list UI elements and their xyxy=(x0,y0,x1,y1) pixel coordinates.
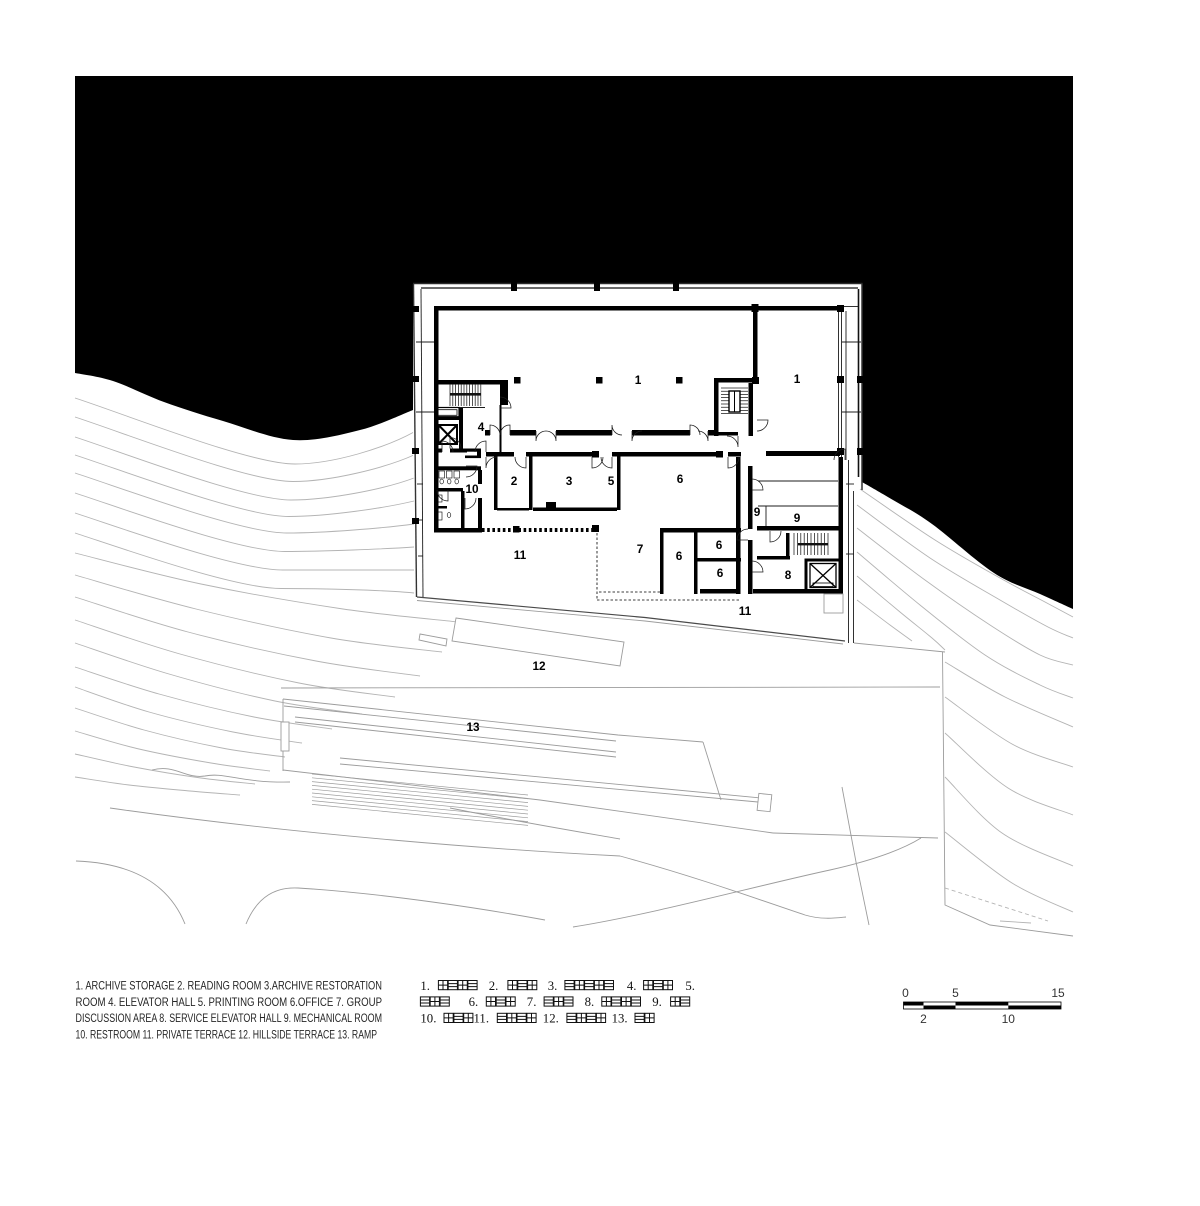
svg-text:3.: 3. xyxy=(548,979,558,993)
svg-text:6: 6 xyxy=(676,549,683,563)
svg-text:DISCUSSION AREA 8. SERVICE EL: DISCUSSION AREA 8. SERVICE ELEVATOR HALL… xyxy=(76,1011,383,1025)
svg-text:10: 10 xyxy=(1002,1012,1016,1026)
svg-text:11: 11 xyxy=(739,604,752,618)
svg-text:1. ARCHIVE STORAGE 2. READ: 1. ARCHIVE STORAGE 2. READING ROOM 3.ARC… xyxy=(76,978,383,992)
svg-text:13.: 13. xyxy=(612,1012,628,1026)
svg-text:7: 7 xyxy=(637,542,644,556)
svg-text:6.: 6. xyxy=(469,995,479,1009)
svg-text:15: 15 xyxy=(1051,986,1065,1000)
svg-text:5: 5 xyxy=(608,474,615,488)
svg-text:1: 1 xyxy=(635,373,642,387)
svg-text:9.: 9. xyxy=(652,995,662,1009)
svg-text:10. RESTROOM 11. PRIVATE TERRA: 10. RESTROOM 11. PRIVATE TERRACE 12. HIL… xyxy=(76,1028,378,1042)
svg-text:9: 9 xyxy=(794,511,801,525)
svg-text:6: 6 xyxy=(716,538,723,552)
svg-text:11.: 11. xyxy=(474,1012,490,1026)
svg-text:2.: 2. xyxy=(489,979,499,993)
svg-text:12: 12 xyxy=(532,659,546,673)
svg-text:2: 2 xyxy=(511,474,518,488)
svg-text:13: 13 xyxy=(466,720,480,734)
svg-text:9: 9 xyxy=(754,505,761,519)
svg-text:5: 5 xyxy=(952,986,959,1000)
svg-text:4.: 4. xyxy=(627,979,637,993)
svg-text:5.: 5. xyxy=(685,979,695,993)
svg-text:12.: 12. xyxy=(543,1012,559,1026)
svg-text:4: 4 xyxy=(478,420,485,434)
svg-text:10: 10 xyxy=(465,482,479,496)
svg-text:0: 0 xyxy=(902,986,909,1000)
svg-text:8: 8 xyxy=(785,568,792,582)
svg-text:ROOM 4. ELEVATOR HALL 5. PR: ROOM 4. ELEVATOR HALL 5. PRINTING ROOM 6… xyxy=(76,995,383,1009)
svg-text:10.: 10. xyxy=(420,1012,436,1026)
svg-text:1.: 1. xyxy=(420,979,430,993)
svg-text:7.: 7. xyxy=(527,995,537,1009)
svg-text:8.: 8. xyxy=(585,995,595,1009)
svg-text:3: 3 xyxy=(566,474,573,488)
svg-text:2: 2 xyxy=(920,1012,927,1026)
svg-text:6: 6 xyxy=(677,472,684,486)
svg-text:1: 1 xyxy=(794,372,801,386)
svg-text:6: 6 xyxy=(717,566,724,580)
svg-text:11: 11 xyxy=(514,548,527,562)
